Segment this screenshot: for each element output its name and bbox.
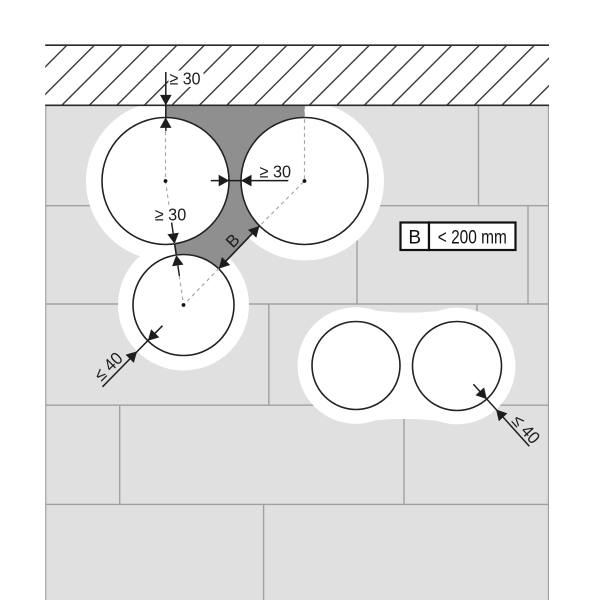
svg-text:≥ 30: ≥ 30 <box>260 161 292 181</box>
svg-text:< 200 mm: < 200 mm <box>438 228 507 249</box>
svg-text:≥ 30: ≥ 30 <box>170 69 201 89</box>
svg-text:B: B <box>408 228 421 249</box>
svg-text:≥ 30: ≥ 30 <box>155 204 187 224</box>
